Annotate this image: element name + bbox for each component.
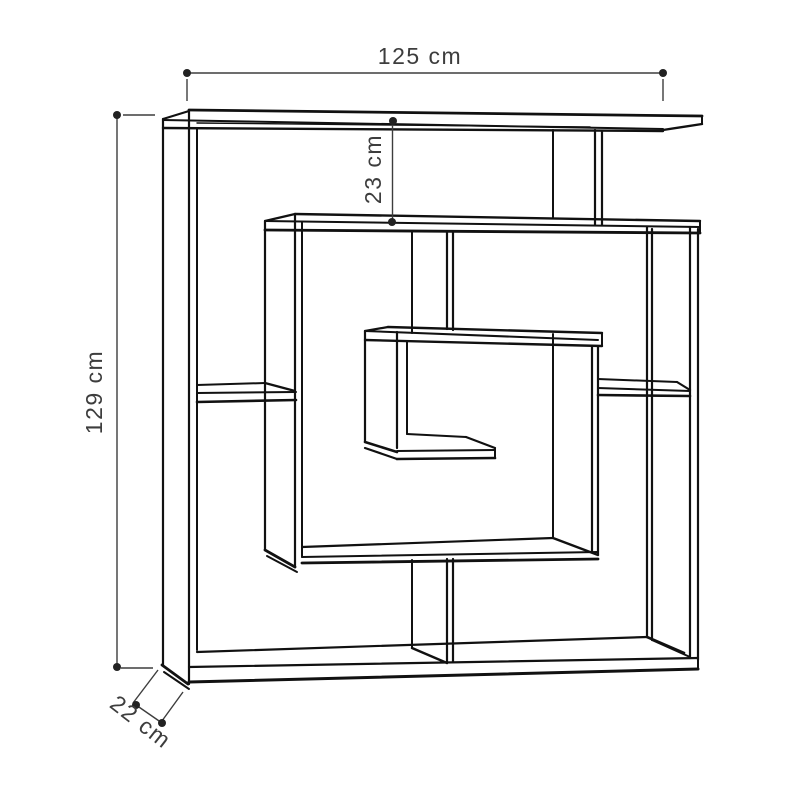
middle-divider xyxy=(412,231,453,333)
left-side-panel xyxy=(162,111,197,689)
inner-square-bottom-shelf xyxy=(302,538,598,563)
inner-square-right-wall xyxy=(647,227,690,657)
dimension-diagram: 125 cm 129 cm 23 cm 22 cm xyxy=(0,0,800,800)
dimension-top-gap xyxy=(388,117,397,226)
depth-dimension-label: 22 cm xyxy=(105,690,176,754)
second-shelf xyxy=(265,214,700,233)
center-box-right-wall xyxy=(553,334,598,555)
dimension-dot xyxy=(389,117,397,125)
center-box-top xyxy=(365,327,602,346)
dimension-labels: 125 cm 129 cm 23 cm 22 cm xyxy=(81,43,462,754)
top-gap-dimension-label: 23 cm xyxy=(360,134,386,204)
height-dimension-label: 129 cm xyxy=(81,350,107,434)
top-board xyxy=(163,110,702,131)
right-side-shelf xyxy=(598,379,690,396)
dimension-dot xyxy=(659,69,667,77)
left-side-shelf xyxy=(197,383,296,402)
dimension-dot xyxy=(113,111,121,119)
bottom-board xyxy=(189,637,698,682)
bookshelf-outline xyxy=(162,110,702,689)
bookshelf-drawing: 125 cm 129 cm 23 cm 22 cm xyxy=(0,0,800,800)
dimension-dot xyxy=(388,218,396,226)
width-dimension-label: 125 cm xyxy=(378,43,462,69)
center-box-left-wall xyxy=(365,331,407,459)
top-divider xyxy=(553,130,602,225)
right-side-panel xyxy=(690,227,698,660)
dimension-height xyxy=(113,111,155,671)
dimension-dot xyxy=(183,69,191,77)
center-box-bottom-shelf xyxy=(397,434,495,459)
dimension-dot xyxy=(113,663,121,671)
dimension-width xyxy=(183,69,667,101)
lower-divider xyxy=(412,559,453,663)
